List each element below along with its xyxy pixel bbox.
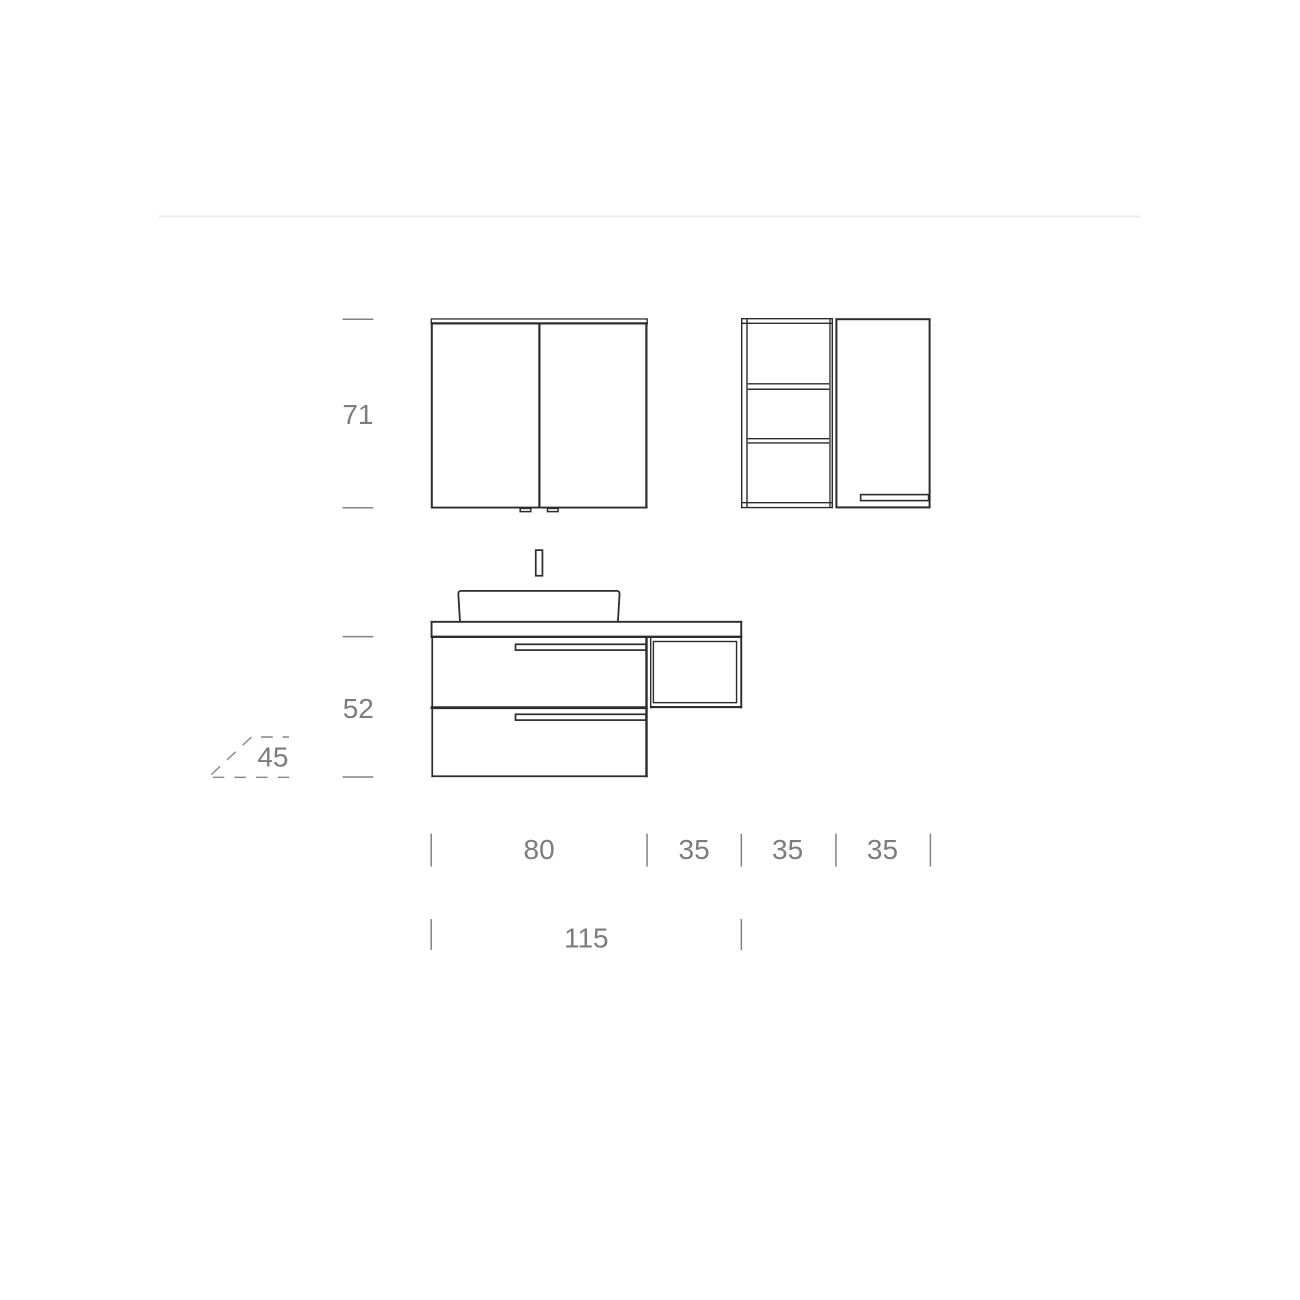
svg-text:35: 35: [867, 834, 898, 865]
svg-text:35: 35: [772, 834, 803, 865]
svg-text:80: 80: [524, 834, 555, 865]
svg-text:35: 35: [679, 834, 710, 865]
svg-text:115: 115: [564, 922, 609, 953]
svg-text:52: 52: [343, 693, 374, 724]
svg-text:71: 71: [342, 399, 373, 430]
svg-text:45: 45: [257, 742, 288, 773]
